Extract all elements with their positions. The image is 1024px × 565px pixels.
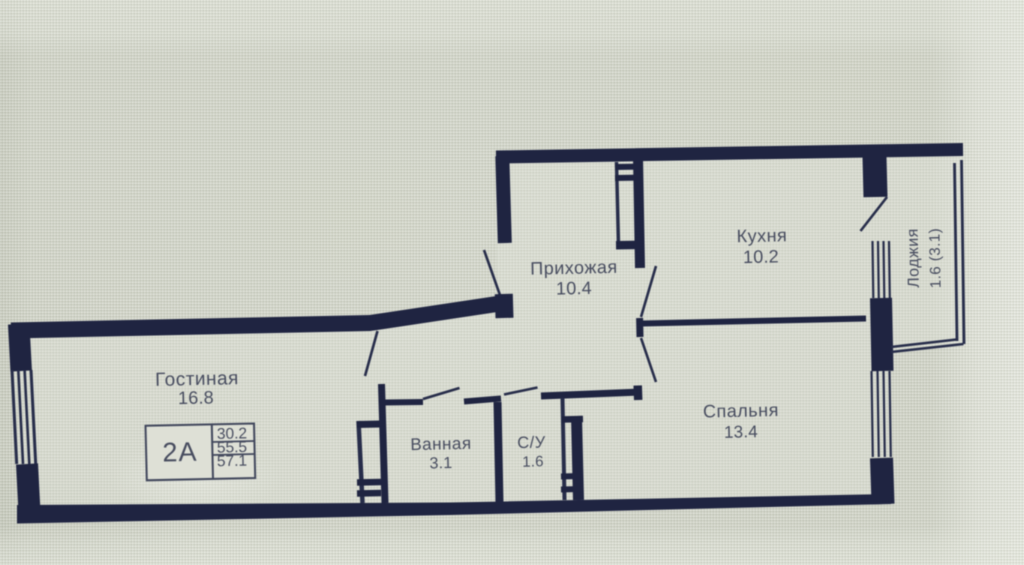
- svg-text:1.6 (3.1): 1.6 (3.1): [926, 228, 944, 289]
- svg-text:С/У: С/У: [517, 434, 546, 453]
- svg-text:57.1: 57.1: [217, 453, 248, 471]
- svg-text:10.4: 10.4: [556, 278, 592, 299]
- svg-text:13.4: 13.4: [724, 422, 758, 442]
- svg-text:16.8: 16.8: [178, 387, 214, 408]
- svg-text:Ванная: Ванная: [410, 434, 472, 454]
- svg-text:3.1: 3.1: [429, 455, 452, 472]
- svg-text:Лоджия: Лоджия: [905, 228, 923, 288]
- svg-text:10.2: 10.2: [743, 246, 779, 267]
- svg-text:1.6: 1.6: [522, 453, 544, 470]
- svg-text:Кухня: Кухня: [736, 225, 787, 246]
- svg-text:Спальня: Спальня: [703, 400, 779, 422]
- svg-text:2А: 2А: [162, 437, 198, 468]
- svg-text:Прихожая: Прихожая: [530, 257, 618, 279]
